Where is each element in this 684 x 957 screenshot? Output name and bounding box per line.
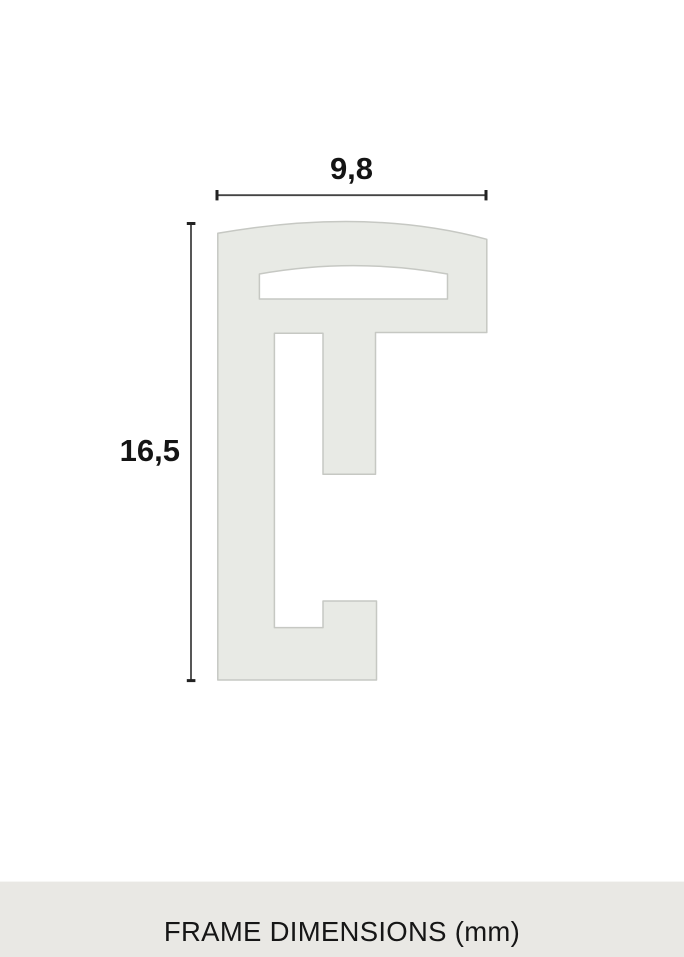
svg-text:FRAME DIMENSIONS (mm): FRAME DIMENSIONS (mm) [164, 916, 520, 947]
svg-text:16,5: 16,5 [120, 433, 180, 468]
svg-text:9,8: 9,8 [330, 151, 373, 186]
